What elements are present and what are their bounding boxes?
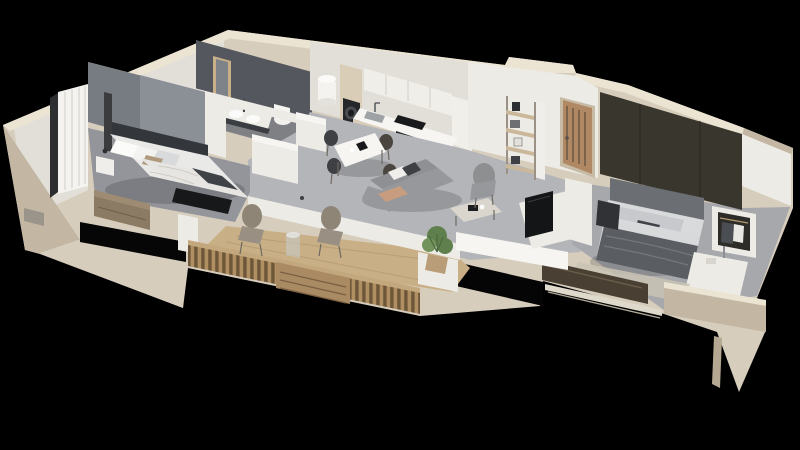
sink	[246, 115, 260, 123]
floorplan-canvas	[0, 0, 800, 450]
hanging-clothes	[733, 224, 744, 243]
wall-white-strip	[205, 92, 226, 158]
open-wardrobe	[712, 206, 756, 258]
shelf-decor	[511, 156, 520, 164]
water-heater	[318, 75, 336, 106]
floor-decor	[300, 196, 304, 200]
shelf-decor	[510, 120, 520, 128]
hanging-clothes	[721, 222, 734, 244]
entrance-door	[560, 97, 595, 178]
floorplan-render	[0, 0, 800, 450]
vanity-decor	[706, 258, 716, 264]
table-decor	[468, 205, 478, 211]
door-handle-icon	[565, 136, 569, 140]
tv	[525, 191, 553, 238]
sink	[229, 110, 243, 118]
glass-side-table	[286, 232, 300, 258]
shelf-decor	[512, 102, 520, 111]
floor-mirror	[104, 92, 112, 152]
lamp-icon	[103, 149, 108, 154]
shelf-decor	[514, 138, 522, 146]
laundry-basket	[596, 200, 620, 230]
window-glass	[50, 93, 58, 198]
curtains	[58, 84, 88, 194]
